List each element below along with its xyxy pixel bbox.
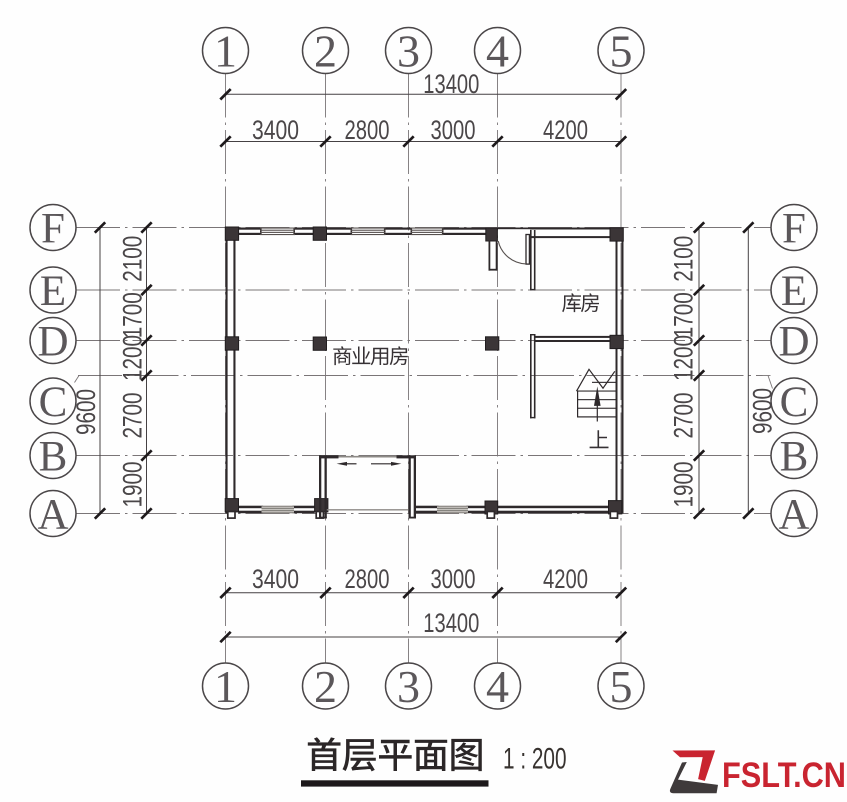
svg-text:1 : 200: 1 : 200 <box>503 743 567 776</box>
svg-text:D: D <box>778 319 809 366</box>
svg-text:FSLT.CN: FSLT.CN <box>722 756 846 795</box>
svg-text:3: 3 <box>397 661 420 712</box>
svg-text:2700: 2700 <box>668 393 698 439</box>
svg-text:4200: 4200 <box>543 564 588 594</box>
svg-text:1: 1 <box>214 26 237 77</box>
svg-text:1: 1 <box>214 661 237 712</box>
svg-text:F: F <box>41 206 65 253</box>
svg-text:5: 5 <box>610 661 633 712</box>
svg-text:1200: 1200 <box>668 335 698 381</box>
svg-text:F: F <box>782 206 806 253</box>
svg-text:E: E <box>781 268 807 315</box>
svg-text:A: A <box>37 492 68 539</box>
svg-text:4: 4 <box>486 26 509 77</box>
svg-text:D: D <box>37 319 68 366</box>
svg-text:1700: 1700 <box>668 292 698 338</box>
svg-text:B: B <box>39 434 68 481</box>
svg-text:9600: 9600 <box>71 389 101 435</box>
svg-text:1700: 1700 <box>117 292 147 338</box>
svg-text:C: C <box>780 379 809 426</box>
svg-text:2700: 2700 <box>117 393 147 439</box>
svg-text:1200: 1200 <box>117 335 147 381</box>
svg-text:2: 2 <box>314 661 337 712</box>
svg-text:3: 3 <box>397 26 420 77</box>
svg-text:2100: 2100 <box>117 236 147 282</box>
svg-text:3400: 3400 <box>252 115 299 145</box>
svg-text:4200: 4200 <box>543 115 588 145</box>
svg-text:13400: 13400 <box>423 69 479 99</box>
svg-text:3000: 3000 <box>431 564 476 594</box>
svg-text:E: E <box>40 268 66 315</box>
svg-text:3000: 3000 <box>431 115 476 145</box>
svg-text:13400: 13400 <box>423 608 479 638</box>
svg-text:4: 4 <box>486 661 509 712</box>
svg-text:1900: 1900 <box>668 462 698 508</box>
svg-text:3400: 3400 <box>252 564 299 594</box>
svg-text:C: C <box>39 379 68 426</box>
svg-text:9600: 9600 <box>747 388 777 434</box>
svg-text:2800: 2800 <box>345 115 390 145</box>
svg-text:2: 2 <box>314 26 337 77</box>
svg-text:B: B <box>780 434 809 481</box>
svg-text:2800: 2800 <box>345 564 390 594</box>
svg-text:A: A <box>778 492 809 539</box>
svg-text:5: 5 <box>610 26 633 77</box>
svg-text:2100: 2100 <box>668 236 698 282</box>
svg-text:1900: 1900 <box>117 462 147 508</box>
